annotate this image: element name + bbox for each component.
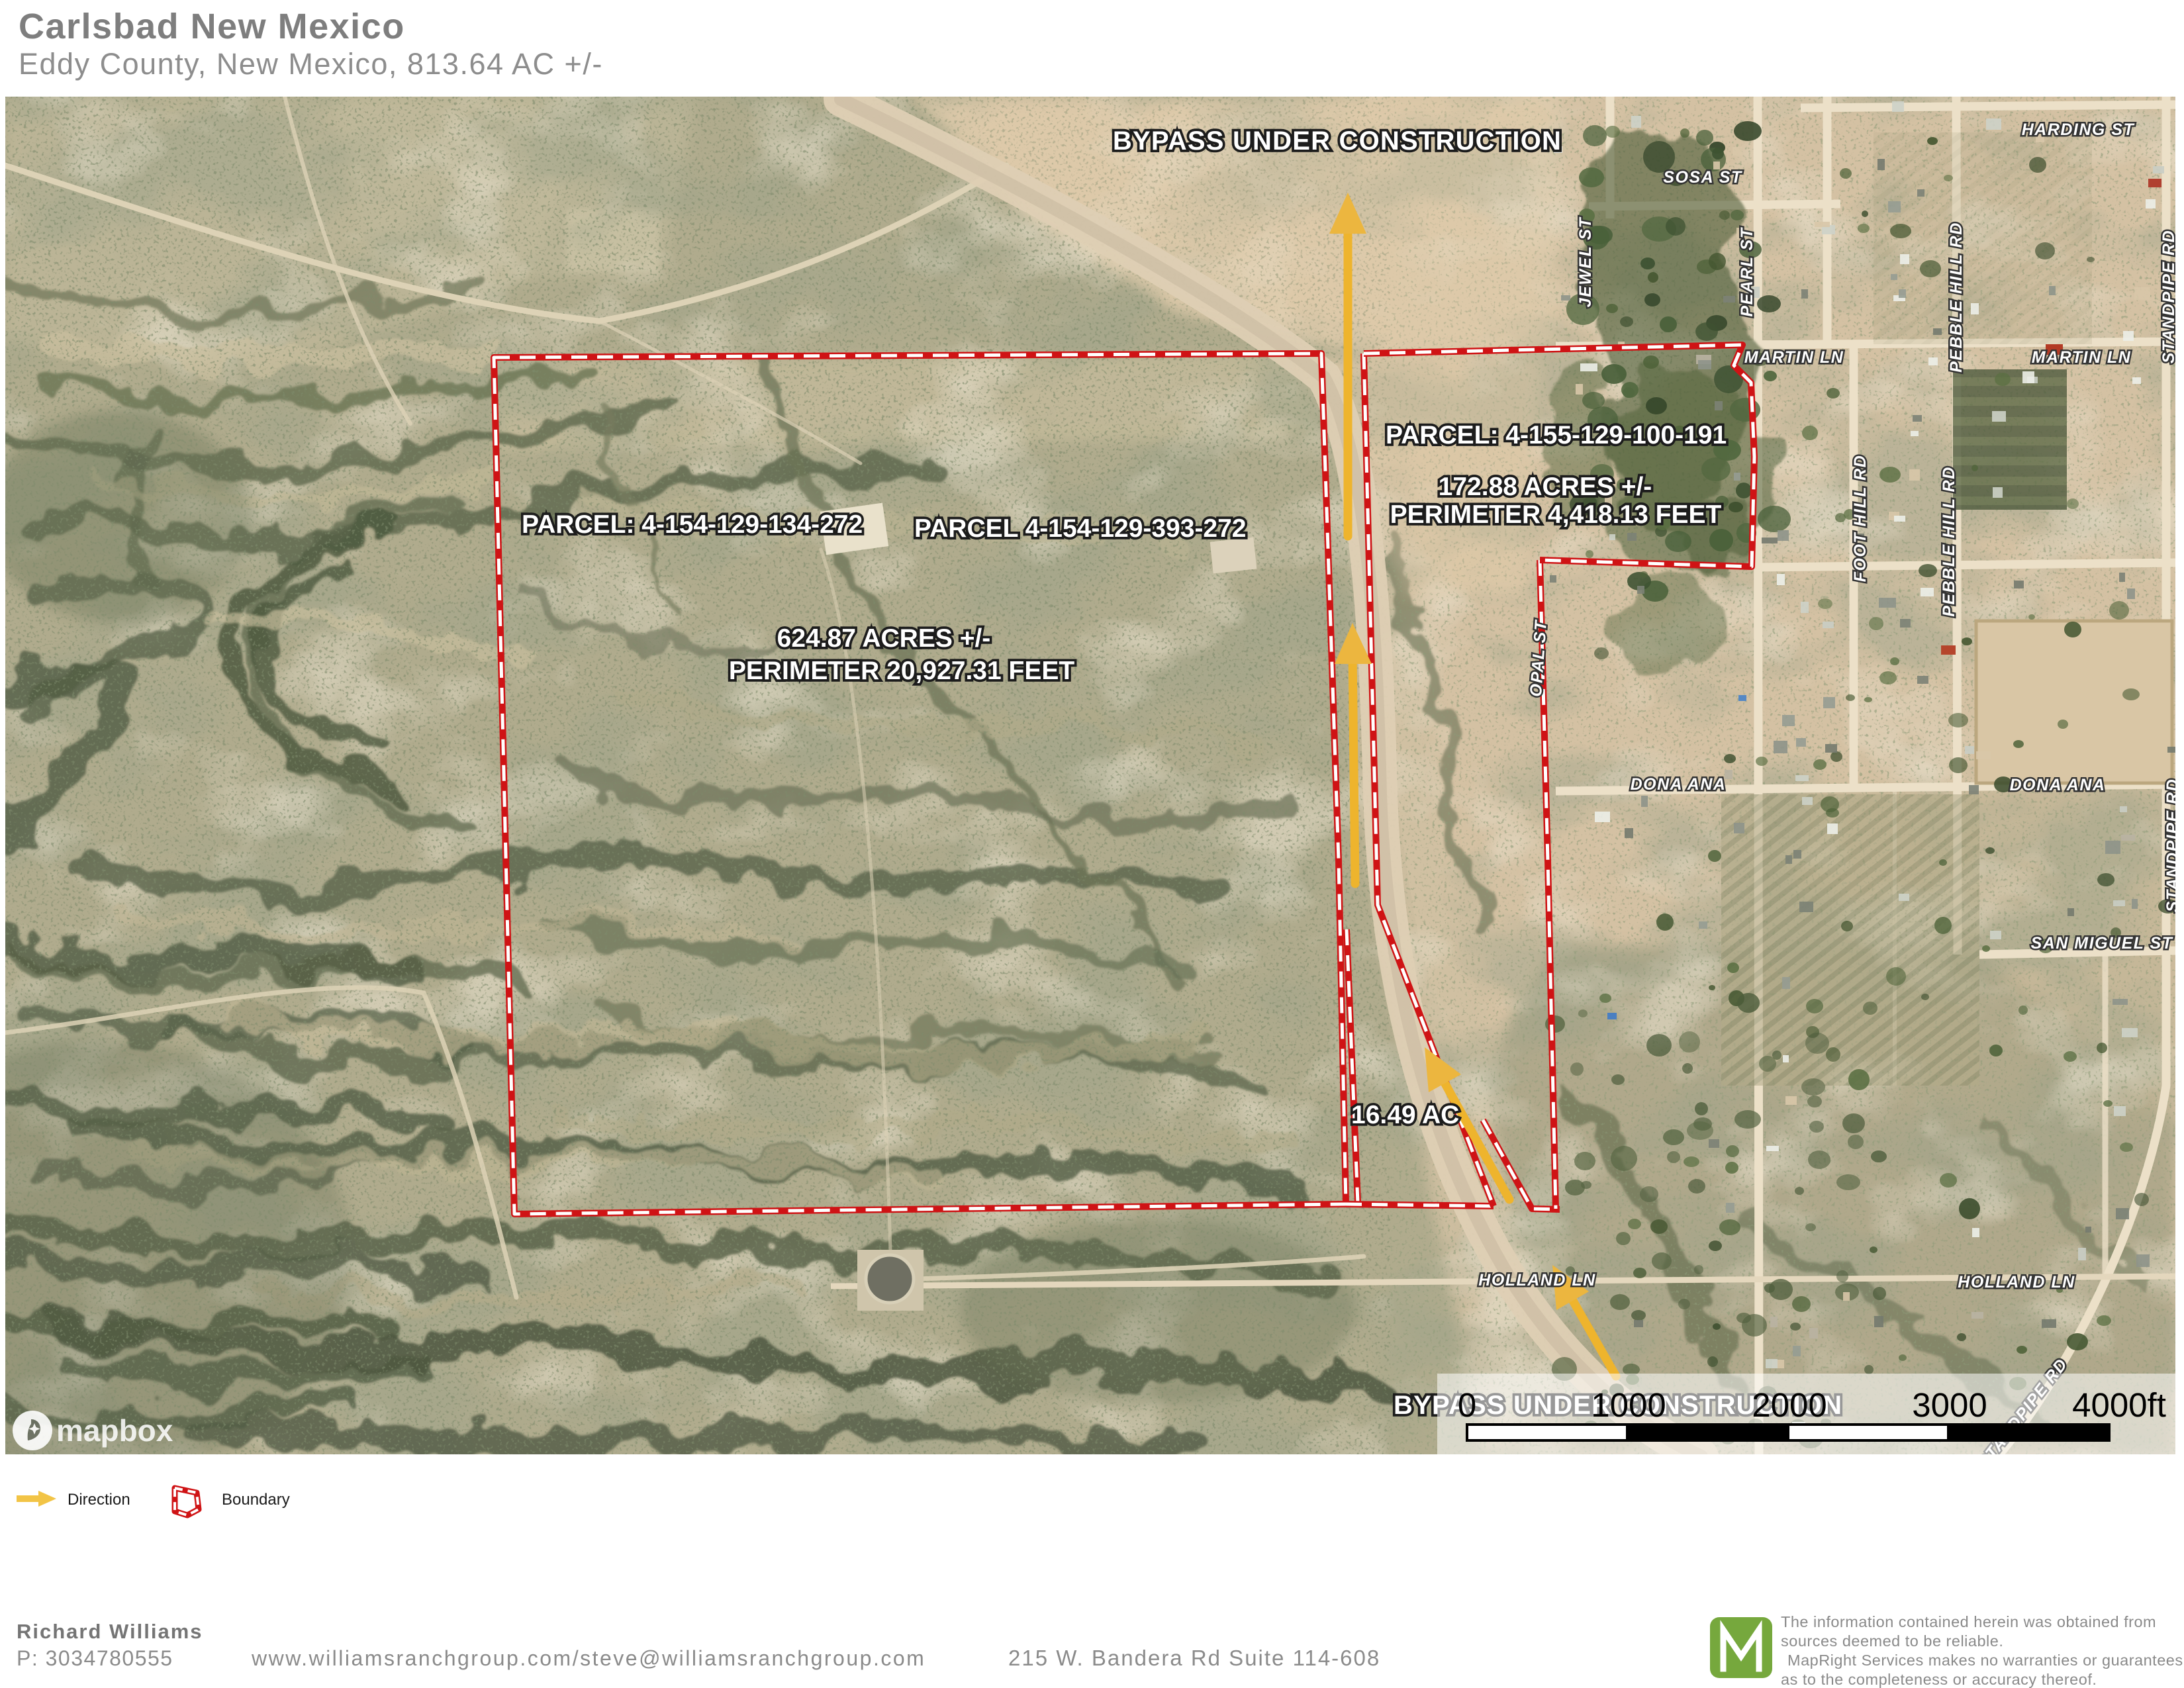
svg-text:MARTIN LN: MARTIN LN xyxy=(2032,348,2132,367)
svg-text:PEBBLE HILL RD: PEBBLE HILL RD xyxy=(1940,466,1958,617)
svg-text:PARCEL 4-154-129-393-272: PARCEL 4-154-129-393-272 xyxy=(914,514,1247,543)
svg-text:16.49 AC: 16.49 AC xyxy=(1351,1101,1459,1129)
svg-text:MapRight Services makes no war: MapRight Services makes no warranties or… xyxy=(1787,1652,2183,1669)
svg-text:BYPASS UNDER CONSTRUCTION: BYPASS UNDER CONSTRUCTION xyxy=(1113,126,1562,156)
svg-text:P: 3034780555: P: 3034780555 xyxy=(17,1646,173,1670)
svg-text:DONA ANA: DONA ANA xyxy=(1631,775,1727,794)
svg-text:sources deemed to be reliable.: sources deemed to be reliable. xyxy=(1781,1632,2003,1650)
svg-text:172.88 ACRES +/-: 172.88 ACRES +/- xyxy=(1439,473,1652,501)
svg-text:PARCEL: 4-154-129-134-272: PARCEL: 4-154-129-134-272 xyxy=(522,510,863,539)
svg-text:Carlsbad New Mexico: Carlsbad New Mexico xyxy=(19,7,405,46)
svg-text:FOOT HILL RD: FOOT HILL RD xyxy=(1851,455,1870,583)
svg-text:PEBBLE HILL RD: PEBBLE HILL RD xyxy=(1947,222,1966,373)
svg-text:as to the completeness or accu: as to the completeness or accuracy there… xyxy=(1781,1671,2097,1688)
svg-text:SOSA ST: SOSA ST xyxy=(1663,168,1743,187)
svg-text:Boundary: Boundary xyxy=(222,1491,290,1509)
svg-text:HOLLAND LN: HOLLAND LN xyxy=(1478,1271,1595,1289)
svg-text:1000: 1000 xyxy=(1591,1386,1666,1424)
svg-text:DONA ANA: DONA ANA xyxy=(2010,776,2106,794)
svg-text:The information contained here: The information contained herein was obt… xyxy=(1781,1613,2156,1630)
svg-text:JEWEL ST: JEWEL ST xyxy=(1576,216,1595,307)
svg-text:PERIMETER 4,418.13 FEET: PERIMETER 4,418.13 FEET xyxy=(1390,500,1722,529)
svg-text:STANDPIPE RD: STANDPIPE RD xyxy=(2160,230,2178,363)
svg-text:PERIMETER 20,927.31 FEET: PERIMETER 20,927.31 FEET xyxy=(729,657,1075,685)
svg-text:PEARL ST: PEARL ST xyxy=(1738,226,1756,316)
svg-text:Richard Williams: Richard Williams xyxy=(17,1620,203,1643)
svg-text:HOLLAND LN: HOLLAND LN xyxy=(1958,1273,2075,1291)
svg-text:2000: 2000 xyxy=(1752,1386,1827,1424)
svg-text:HARDING ST: HARDING ST xyxy=(2022,120,2136,139)
svg-text:4000ft: 4000ft xyxy=(2072,1386,2166,1424)
svg-text:3000: 3000 xyxy=(1912,1386,1987,1424)
svg-text:624.87 ACRES +/-: 624.87 ACRES +/- xyxy=(777,624,991,653)
svg-text:www.williamsranchgroup.com/ste: www.williamsranchgroup.com/steve@william… xyxy=(251,1646,926,1670)
svg-text:Eddy County, New Mexico, 813.6: Eddy County, New Mexico, 813.64 AC +/- xyxy=(19,47,603,81)
svg-text:SAN MIGUEL ST: SAN MIGUEL ST xyxy=(2031,934,2174,953)
svg-text:mapbox: mapbox xyxy=(56,1413,173,1448)
svg-text:0: 0 xyxy=(1458,1386,1476,1424)
svg-text:MARTIN LN: MARTIN LN xyxy=(1744,348,1844,367)
svg-text:PARCEL: 4-155-129-100-191: PARCEL: 4-155-129-100-191 xyxy=(1386,421,1727,449)
svg-text:215 W. Bandera Rd Suite 114-60: 215 W. Bandera Rd Suite 114-608 xyxy=(1008,1646,1380,1670)
svg-text:Direction: Direction xyxy=(68,1491,130,1509)
